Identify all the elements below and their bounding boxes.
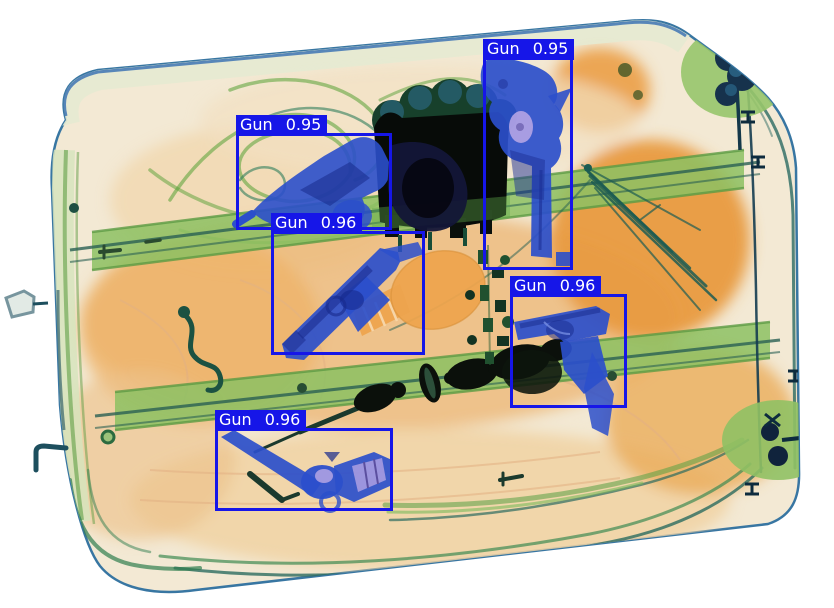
detection-label: Gun0.95 [483,39,574,60]
detection-score-text: 0.96 [560,276,596,295]
detection-box-4: Gun0.96 [510,294,627,408]
detection-class-text: Gun [514,276,547,295]
detection-score-text: 0.95 [286,115,322,134]
detection-label: Gun0.96 [271,213,362,234]
detection-box-1: Gun0.95 [483,57,573,270]
detection-box-5: Gun0.96 [215,428,393,511]
detection-class-text: Gun [275,213,308,232]
detection-score-text: 0.96 [321,213,357,232]
detection-label: Gun0.96 [215,410,306,431]
xray-scan-image: Gun0.95 Gun0.95 Gun0.96 Gun0.96 Gun0.96 [0,0,834,608]
detection-score-text: 0.96 [265,410,301,429]
detection-class-text: Gun [219,410,252,429]
detection-class-text: Gun [240,115,273,134]
detection-class-text: Gun [487,39,520,58]
detections-overlay: Gun0.95 Gun0.95 Gun0.96 Gun0.96 Gun0.96 [0,0,834,608]
detection-box-3: Gun0.96 [271,231,425,355]
detection-score-text: 0.95 [533,39,569,58]
detection-label: Gun0.95 [236,115,327,136]
detection-label: Gun0.96 [510,276,601,297]
